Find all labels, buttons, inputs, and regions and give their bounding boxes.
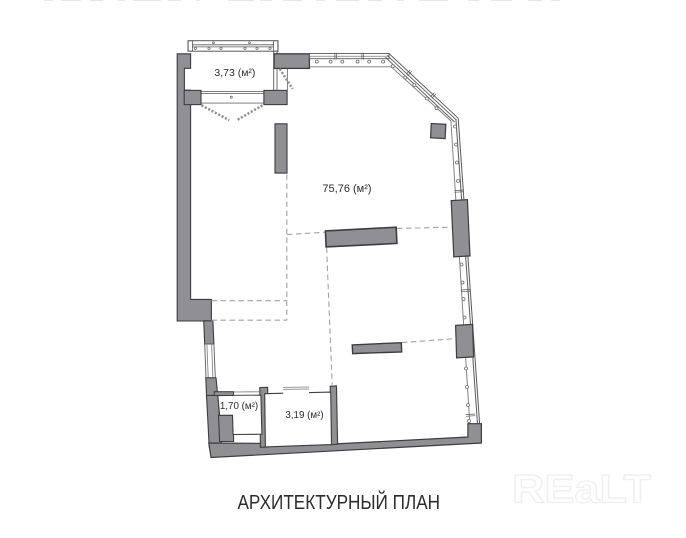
svg-text:АРХИТЕКТУРНЫЙ ПЛАН: АРХИТЕКТУРНЫЙ ПЛАН bbox=[238, 490, 441, 514]
svg-text:REaLT: REaLT bbox=[512, 468, 651, 512]
svg-text:3,19 (м²): 3,19 (м²) bbox=[285, 410, 323, 421]
svg-text:3,73 (м²): 3,73 (м²) bbox=[214, 67, 255, 79]
svg-text:75,76 (м²): 75,76 (м²) bbox=[322, 183, 371, 195]
svg-text:1,70 (м²): 1,70 (м²) bbox=[220, 401, 258, 412]
